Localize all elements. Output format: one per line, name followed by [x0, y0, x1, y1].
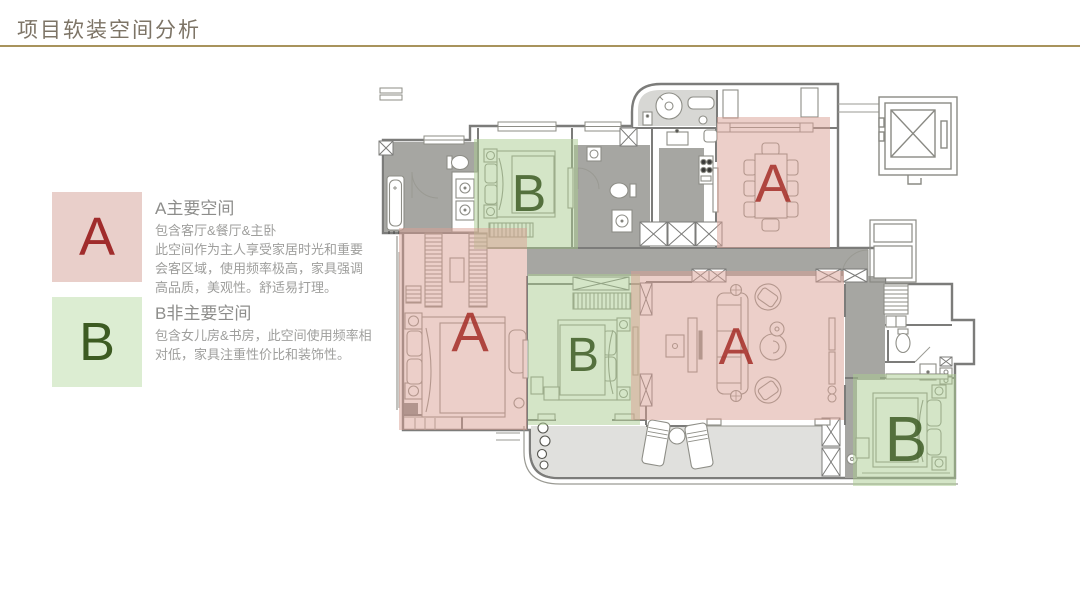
washer-icon — [656, 93, 682, 119]
wall-box — [643, 112, 652, 125]
appliance-2 — [801, 88, 818, 117]
hallway-floor — [845, 276, 885, 380]
fridge-icon — [704, 130, 717, 142]
small-basin — [699, 116, 707, 124]
bathtub-icon — [387, 176, 404, 234]
balcony-table — [669, 428, 685, 444]
kitchen-sink-icon — [667, 129, 688, 145]
toilet-icon-bath3 — [896, 329, 910, 353]
laundry-counter — [688, 97, 714, 109]
zone-label-bedroom-top: B — [512, 165, 547, 223]
hall-cabinet — [886, 316, 906, 327]
kitchen-island — [659, 148, 704, 228]
toilet-icon-master — [447, 156, 469, 170]
stove-icon — [699, 156, 713, 184]
sink-icon-2 — [456, 201, 474, 220]
zone-label-bedroom-right: B — [885, 403, 928, 475]
zone-label-dining: A — [755, 154, 791, 214]
zone-label-bedroom-middle: B — [567, 329, 599, 382]
zone-label-living-room: A — [719, 318, 754, 376]
bath2-floor — [574, 145, 650, 248]
zone-label-master-bedroom: A — [451, 300, 489, 363]
appliance-1 — [723, 90, 738, 118]
slide: 项目软装空间分析 A A主要空间 包含客厅&餐厅&主卧 此空间作为主人享受家居时… — [0, 0, 1080, 607]
floorplan-svg: BAABAB — [0, 0, 1080, 607]
washbasin-small — [587, 147, 601, 161]
toilet-icon-bath2 — [610, 183, 636, 198]
sink-icon-bath2 — [612, 210, 632, 232]
stair-lobby — [870, 220, 916, 282]
hall-closet — [884, 284, 908, 314]
elevator-shaft — [879, 97, 957, 184]
sink-icon-1 — [456, 179, 474, 198]
